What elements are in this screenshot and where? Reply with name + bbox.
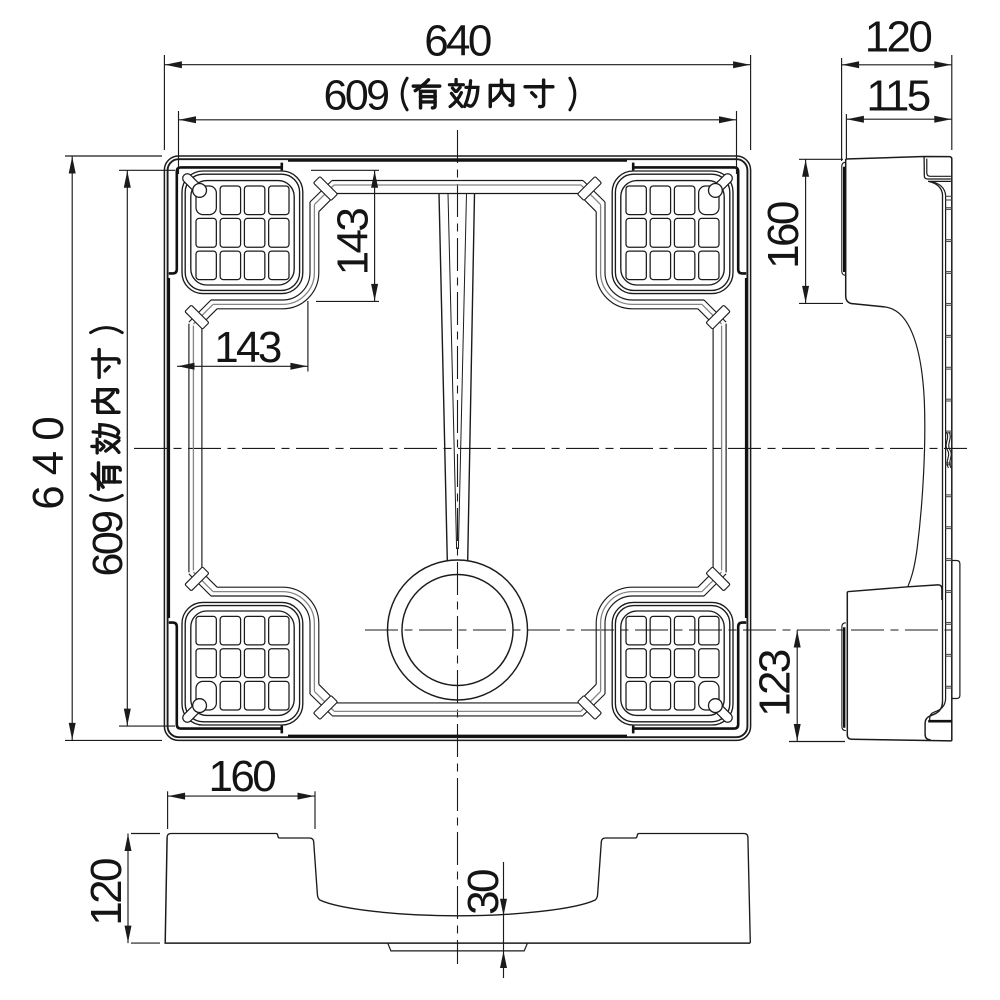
svg-text:609: 609	[84, 512, 132, 577]
svg-text:160: 160	[759, 202, 808, 269]
svg-text:640: 640	[24, 406, 73, 509]
svg-text:115: 115	[866, 71, 929, 120]
svg-text:143: 143	[329, 209, 378, 276]
svg-text:143: 143	[214, 323, 281, 372]
svg-text:609: 609	[324, 72, 389, 120]
svg-text:640: 640	[424, 17, 491, 66]
svg-text:160: 160	[208, 752, 275, 801]
svg-text:120: 120	[82, 859, 131, 926]
svg-text:123: 123	[751, 650, 800, 717]
svg-text:120: 120	[865, 13, 932, 62]
svg-text:30: 30	[459, 870, 508, 915]
